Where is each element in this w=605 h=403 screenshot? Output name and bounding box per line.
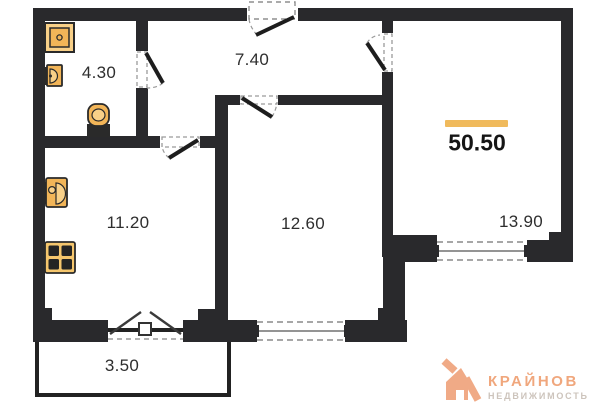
living-room-door xyxy=(367,34,392,71)
kitchen-door xyxy=(162,137,199,158)
bedroom-window xyxy=(253,322,350,340)
room-label-balcony: 3.50 xyxy=(105,356,139,376)
floorplan-drawing xyxy=(0,0,605,403)
logo-tagline-text: НЕДВИЖИМОСТЬ xyxy=(488,392,589,401)
agency-logo: КРАЙНОВ НЕДВИЖИМОСТЬ xyxy=(440,358,600,403)
kitchen-sink-icon xyxy=(43,178,67,207)
room-label-kitchen: 11.20 xyxy=(107,213,150,233)
floorplan-image: 4.30 7.40 11.20 12.60 13.90 3.50 50.50 К… xyxy=(0,0,605,403)
bathroom-door xyxy=(137,52,163,88)
stove-icon xyxy=(45,242,75,273)
shower-icon xyxy=(45,23,74,52)
room-label-living-room: 13.90 xyxy=(499,212,543,232)
room-label-hallway: 7.40 xyxy=(235,50,269,70)
walls xyxy=(33,8,573,342)
room-label-bathroom: 4.30 xyxy=(82,63,116,83)
living-room-window xyxy=(433,242,530,260)
bedroom-door xyxy=(241,96,277,117)
washbasin-icon xyxy=(43,65,62,86)
logo-brand-text: КРАЙНОВ xyxy=(488,374,589,389)
entrance-door xyxy=(249,2,295,35)
toilet-icon xyxy=(87,104,110,137)
total-area-accent-bar xyxy=(445,120,508,127)
total-area-value: 50.50 xyxy=(448,130,506,157)
logo-k-house-icon xyxy=(440,358,482,403)
room-label-bedroom: 12.60 xyxy=(281,214,325,234)
